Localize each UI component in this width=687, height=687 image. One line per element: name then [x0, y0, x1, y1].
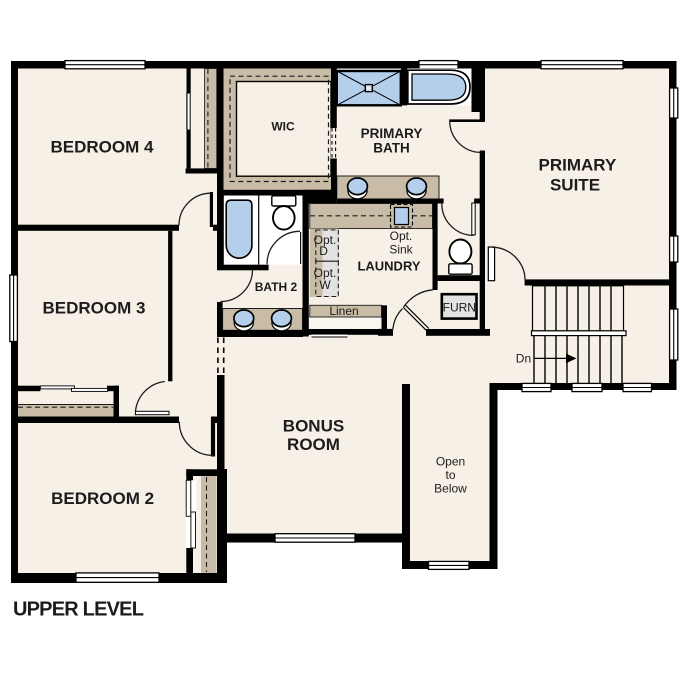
svg-text:UPPER LEVEL: UPPER LEVEL: [13, 599, 144, 621]
svg-text:PRIMARY: PRIMARY: [539, 155, 617, 174]
svg-text:LAUNDRY: LAUNDRY: [357, 258, 420, 273]
svg-text:SUITE: SUITE: [550, 175, 600, 194]
svg-text:Sink: Sink: [389, 243, 413, 257]
svg-text:FURN: FURN: [443, 300, 476, 314]
svg-text:to: to: [445, 468, 455, 482]
svg-text:D: D: [319, 244, 328, 258]
svg-text:BEDROOM 3: BEDROOM 3: [43, 299, 146, 318]
svg-text:Open: Open: [436, 455, 465, 469]
svg-text:Below: Below: [434, 481, 467, 495]
svg-text:Dn: Dn: [516, 351, 531, 365]
svg-text:W: W: [319, 278, 331, 292]
svg-text:BEDROOM 4: BEDROOM 4: [51, 138, 155, 157]
svg-text:BEDROOM 2: BEDROOM 2: [51, 489, 154, 508]
svg-text:BONUS: BONUS: [283, 417, 344, 436]
svg-text:ROOM: ROOM: [287, 435, 340, 454]
svg-text:Opt.: Opt.: [390, 229, 413, 243]
svg-text:Linen: Linen: [329, 304, 358, 318]
svg-text:PRIMARY: PRIMARY: [361, 126, 423, 141]
svg-text:WIC: WIC: [271, 120, 295, 134]
svg-text:BATH 2: BATH 2: [255, 280, 298, 294]
svg-text:BATH: BATH: [373, 141, 410, 156]
